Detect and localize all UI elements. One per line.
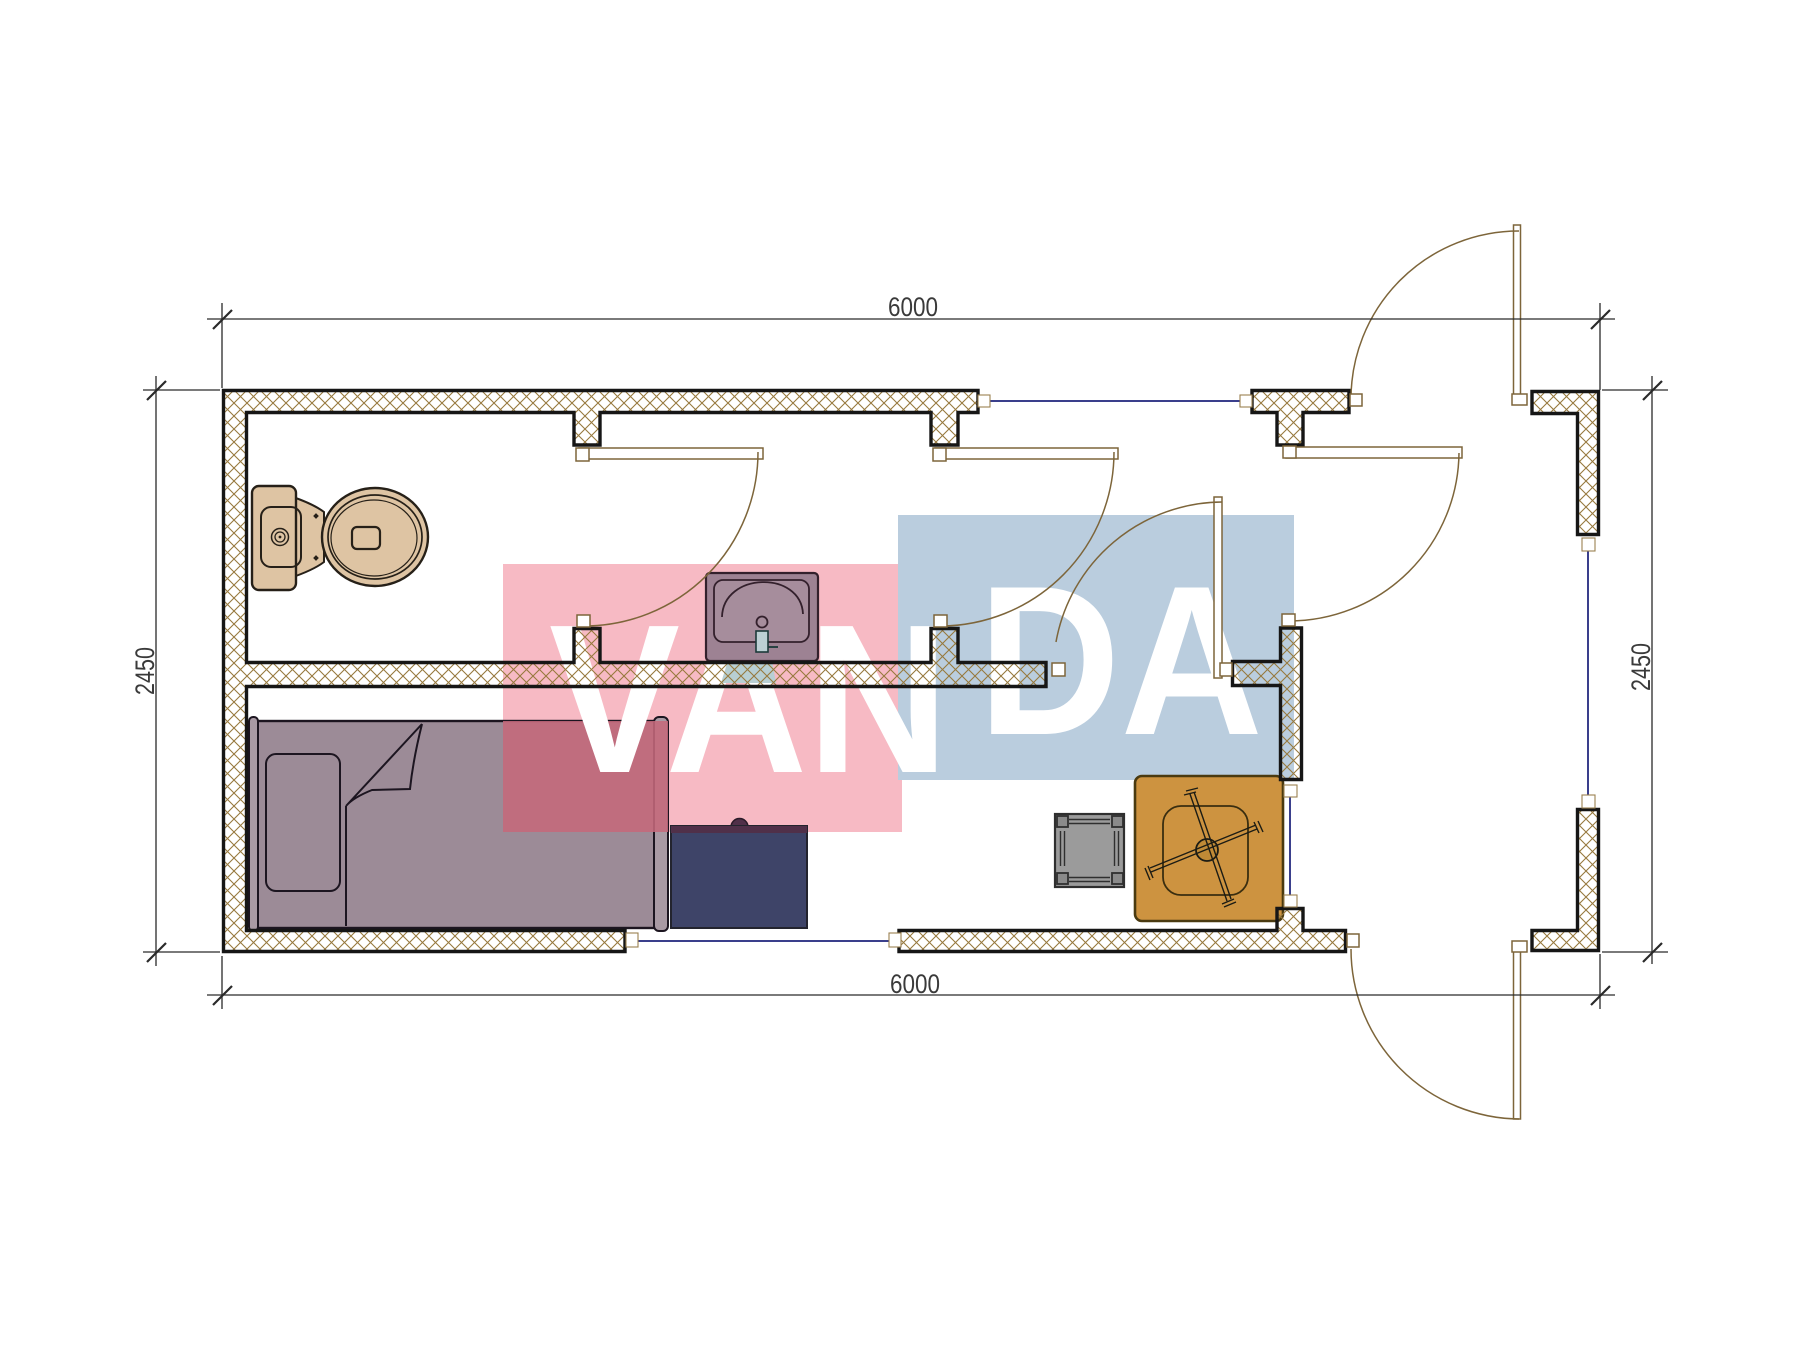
svg-text:2450: 2450 (130, 647, 160, 695)
svg-text:6000: 6000 (890, 969, 940, 999)
svg-text:2450: 2450 (1626, 643, 1656, 691)
svg-text:6000: 6000 (888, 292, 938, 322)
